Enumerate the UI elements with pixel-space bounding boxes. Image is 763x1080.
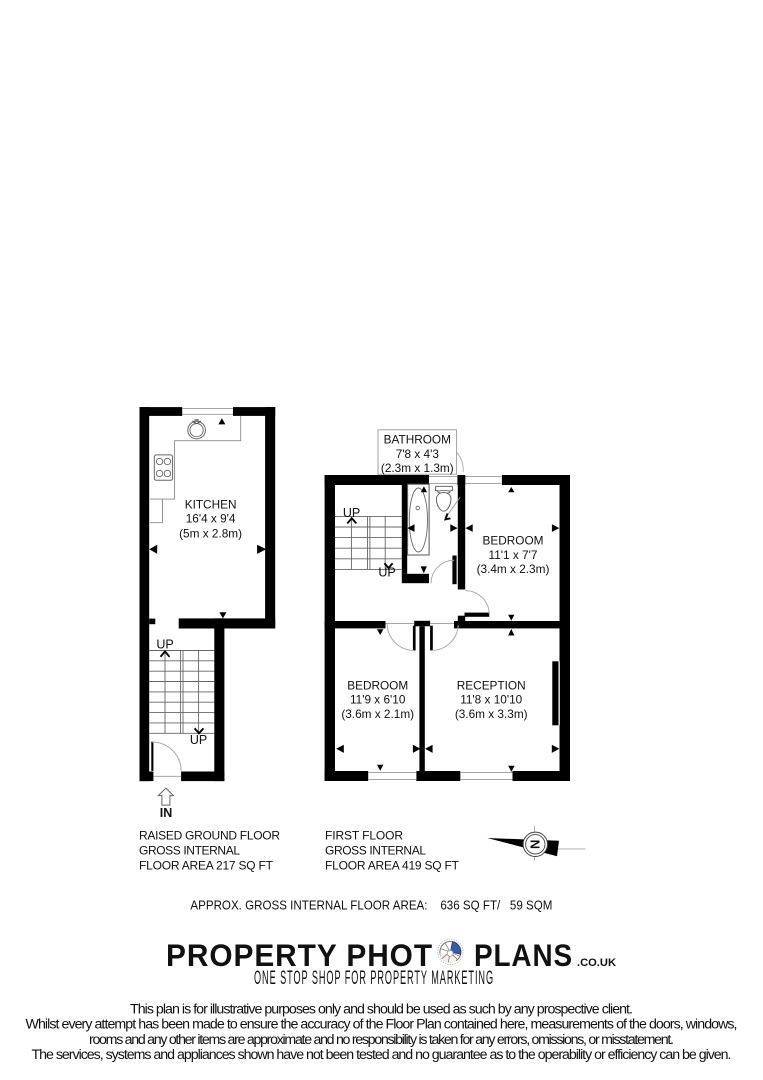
svg-text:UP: UP [190, 733, 207, 747]
svg-text:APPROX. GROSS INTERNAL FLOOR A: APPROX. GROSS INTERNAL FLOOR AREA: 636 S… [190, 897, 552, 912]
svg-text:GROSS INTERNAL: GROSS INTERNAL [139, 844, 240, 858]
svg-text:FLOOR AREA 217 SQ FT: FLOOR AREA 217 SQ FT [139, 859, 274, 873]
svg-text:11'9 x 6'10: 11'9 x 6'10 [350, 693, 406, 707]
svg-text:11'8 x 10'10: 11'8 x 10'10 [460, 693, 522, 707]
svg-text:(5m x 2.8m): (5m x 2.8m) [179, 526, 242, 540]
svg-text:KITCHEN: KITCHEN [185, 498, 237, 512]
svg-text:BEDROOM: BEDROOM [347, 679, 408, 693]
svg-text:ONE STOP SHOP FOR PROPERTY MAR: ONE STOP SHOP FOR PROPERTY MARKETING [254, 967, 494, 989]
svg-text:IN: IN [160, 806, 173, 820]
svg-text:RAISED GROUND FLOOR: RAISED GROUND FLOOR [139, 829, 280, 843]
svg-text:FLOOR AREA 419 SQ FT: FLOOR AREA 419 SQ FT [325, 859, 460, 873]
svg-text:RECEPTION: RECEPTION [457, 679, 526, 693]
svg-text:The services, systems and appl: The services, systems and appliances sho… [31, 1047, 731, 1063]
svg-text:UP: UP [156, 638, 173, 652]
svg-text:N: N [528, 840, 543, 849]
svg-text:11'1 x 7'7: 11'1 x 7'7 [489, 548, 538, 562]
svg-text:rooms and any other items are: rooms and any other items are approximat… [89, 1032, 674, 1048]
svg-text:(3.6m x 3.3m): (3.6m x 3.3m) [455, 707, 528, 721]
svg-text:This plan is for illustrative: This plan is for illustrative purposes o… [130, 1001, 633, 1017]
svg-text:(2.3m x 1.3m): (2.3m x 1.3m) [381, 461, 454, 475]
svg-text:GROSS INTERNAL: GROSS INTERNAL [325, 844, 426, 858]
svg-text:(3.6m x 2.1m): (3.6m x 2.1m) [341, 707, 414, 721]
svg-text:BATHROOM: BATHROOM [384, 433, 451, 447]
svg-text:FIRST FLOOR: FIRST FLOOR [325, 829, 403, 843]
svg-text:(3.4m x 2.3m): (3.4m x 2.3m) [477, 562, 550, 576]
svg-text:BEDROOM: BEDROOM [483, 534, 544, 548]
svg-text:7'8 x 4'3: 7'8 x 4'3 [396, 447, 440, 461]
svg-text:.CO.UK: .CO.UK [577, 957, 616, 969]
svg-text:Whilst every attempt has been: Whilst every attempt has been made to en… [26, 1017, 738, 1033]
svg-text:16'4 x 9'4: 16'4 x 9'4 [186, 512, 236, 526]
